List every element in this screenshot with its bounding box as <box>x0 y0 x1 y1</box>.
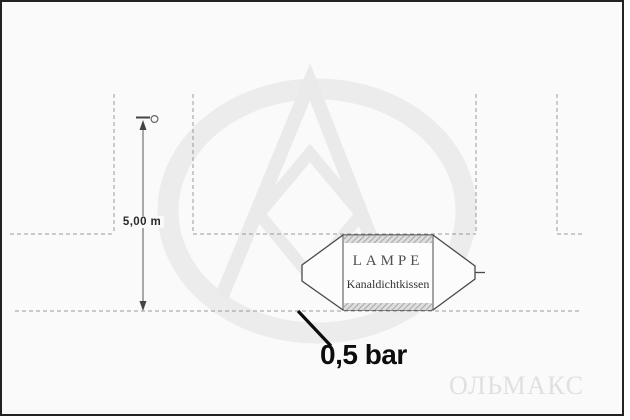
surface-level-marker-icon <box>151 116 158 123</box>
dimension-arrow-up-icon <box>140 120 147 130</box>
channel-drawing <box>0 0 624 416</box>
cushion-brand-label: LAMPE <box>343 254 433 269</box>
depth-dimension-label: 5,00 m <box>120 216 164 228</box>
cushion-label-plate <box>343 235 433 310</box>
sealing-cushion <box>302 235 485 310</box>
cushion-bottom-hatch <box>344 303 432 310</box>
dimension-line <box>136 116 158 311</box>
pressure-value-label: 0,5 bar <box>320 341 407 369</box>
cushion-top-hatch <box>344 236 432 243</box>
diagram-image: ОЛЬМАКС <box>0 0 630 420</box>
diagram-canvas: ОЛЬМАКС <box>0 0 624 416</box>
cushion-product-label: Kanaldichtkissen <box>338 278 438 290</box>
dimension-arrow-down-icon <box>140 301 147 311</box>
